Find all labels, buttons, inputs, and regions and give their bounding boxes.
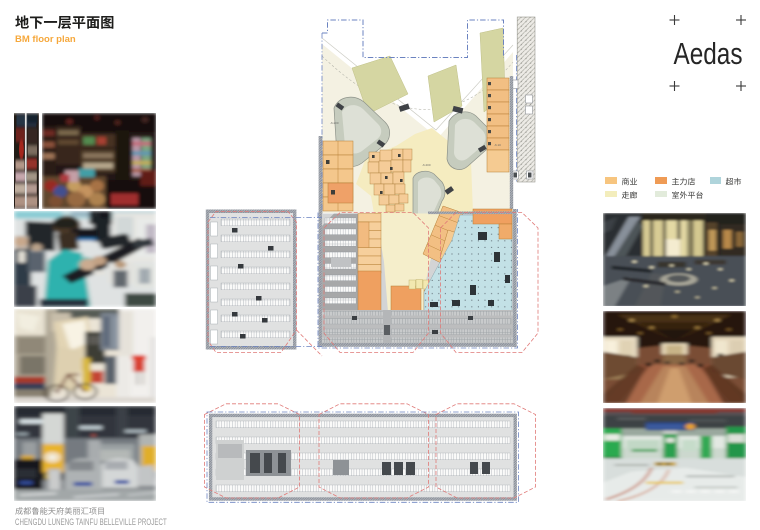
svg-text:Aedas: Aedas	[674, 37, 743, 71]
svg-text:-6.200: -6.200	[422, 163, 431, 167]
svg-text:-6.10: -6.10	[494, 143, 501, 147]
svg-text:-6.200: -6.200	[330, 121, 339, 125]
